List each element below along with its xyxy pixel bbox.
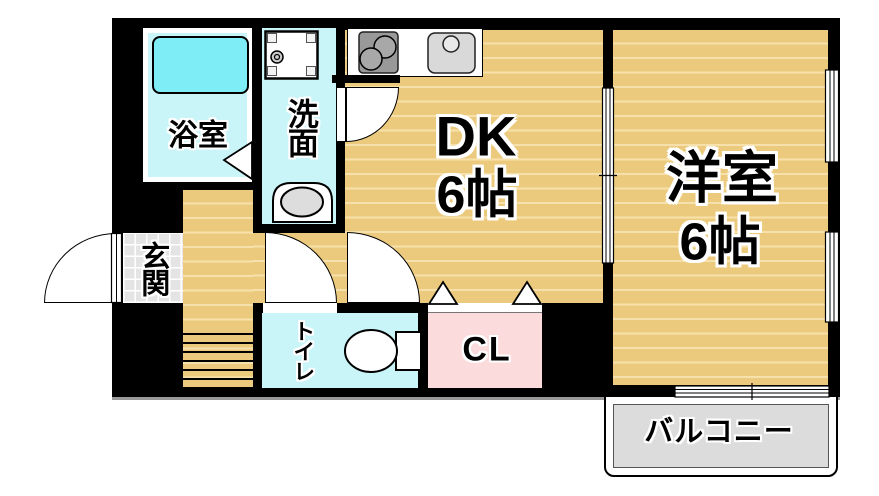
window-east-lower (826, 232, 839, 322)
western-room-label: 洋室 (666, 149, 778, 206)
sink-icon (428, 33, 475, 73)
bathroom-label: 浴室 (168, 122, 228, 153)
floor-plan: DK 6帖 洋室 6帖 浴室 洗面 玄関 トイレ CL バルコニー (0, 0, 879, 496)
washer-pan-icon (266, 32, 318, 79)
window-balcony (675, 383, 829, 400)
entrance-label: 玄関 (137, 241, 167, 295)
western-room-size: 6帖 (680, 216, 761, 269)
window-east-upper (826, 70, 839, 162)
balcony-label: バルコニー (644, 418, 793, 448)
washbasin-icon (273, 183, 332, 222)
stove-icon (359, 32, 398, 73)
entrance-door-leaf (112, 234, 122, 303)
bathroom-door-icon (224, 142, 252, 179)
dk-room-size: 6帖 (437, 169, 518, 222)
closet-label: CL (462, 333, 511, 368)
closet-door-right-icon (513, 282, 541, 304)
washroom-label: 洗面 (284, 98, 316, 156)
toilet-label: トイレ (291, 320, 313, 380)
sliding-door-dk-west (599, 88, 617, 263)
toilet-icon (345, 330, 421, 372)
dk-room-label: DK (436, 107, 517, 164)
closet-door-left-icon (429, 282, 457, 304)
